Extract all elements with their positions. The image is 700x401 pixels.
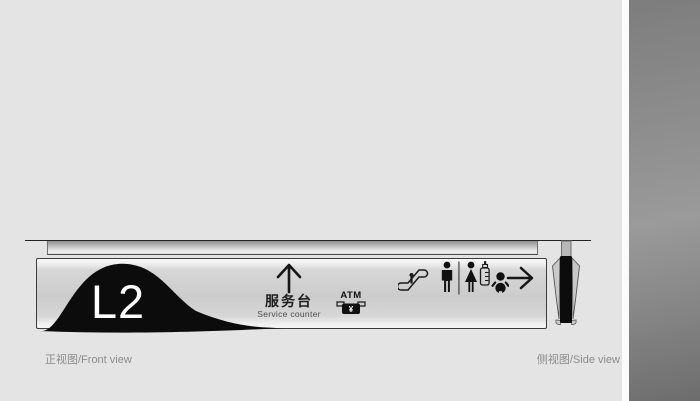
mounting-bracket-bar [47, 241, 538, 255]
destination-label-zh: 服务台 [249, 291, 329, 311]
side-wing-left [553, 258, 561, 319]
sign-panel-side-view [546, 240, 590, 332]
design-sheet: L2 服务台 Service counter ATM ¥ [0, 0, 700, 401]
front-view-caption: 正视图/Front view [45, 351, 132, 367]
page-edge-gradient-strip [629, 0, 700, 401]
wave-blob [40, 264, 284, 333]
destination-label-en: Service counter [239, 309, 339, 319]
side-connector [562, 241, 572, 257]
baby-care-icon [479, 260, 509, 298]
side-wing-right [572, 258, 580, 319]
restroom-icon [440, 261, 478, 297]
atm-currency-symbol: ¥ [349, 305, 354, 314]
right-arrow-icon [506, 264, 536, 292]
level-label: L2 [91, 275, 145, 328]
up-arrow-icon [273, 262, 305, 294]
side-blade-core [560, 256, 572, 323]
side-view-caption: 侧视图/Side view [500, 351, 620, 367]
page-divider-band [622, 0, 629, 401]
atm-label: ATM [335, 290, 367, 301]
escalator-icon [398, 263, 432, 295]
atm-machine-icon: ¥ [336, 301, 366, 317]
atm-group: ATM ¥ [335, 290, 367, 322]
